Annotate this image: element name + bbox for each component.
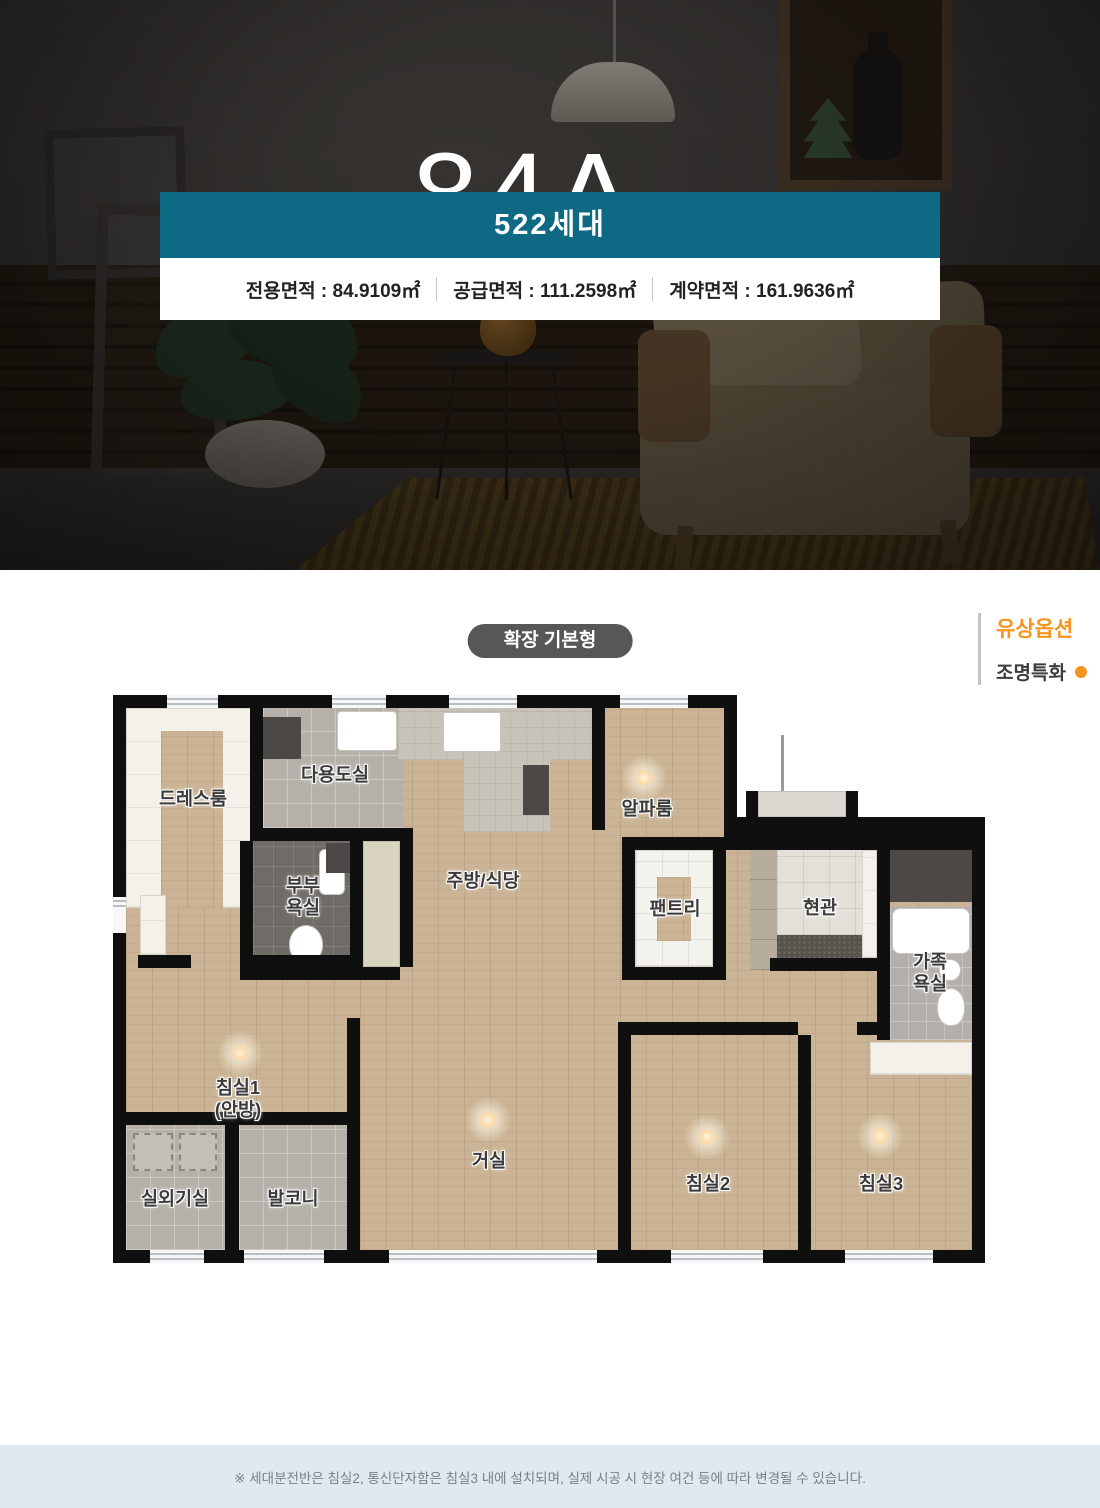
shoe-cabinet xyxy=(750,850,777,970)
lighting-dot-bed3 xyxy=(873,1129,888,1144)
wall-segment xyxy=(857,1022,890,1035)
room-label-family-bath: 가족 욕실 xyxy=(913,951,947,995)
window-marker xyxy=(167,695,218,708)
room-label-balcony: 발코니 xyxy=(267,1188,318,1210)
window-marker xyxy=(449,695,517,708)
ac-outdoor-unit xyxy=(133,1133,173,1171)
area-exclusive: 전용면적 : 84.9109㎡ xyxy=(246,276,421,303)
orange-dot-icon xyxy=(1075,666,1087,678)
window-marker xyxy=(113,897,126,933)
area-contract: 계약면적 : 161.9636㎡ xyxy=(669,276,854,303)
wall-segment xyxy=(138,955,191,968)
utility-cabinet xyxy=(263,717,301,759)
area-supply: 공급면적 : 111.2598㎡ xyxy=(453,276,636,303)
paid-option-title: 유상옵션 xyxy=(996,613,1087,643)
ac-outdoor-unit xyxy=(179,1133,217,1171)
window-marker xyxy=(332,695,386,708)
family-bath-storage xyxy=(890,850,972,902)
divider xyxy=(436,277,437,301)
wall-segment xyxy=(240,841,253,967)
bed3-shelf xyxy=(870,1042,972,1075)
entry-door-line xyxy=(781,735,784,791)
room-entry xyxy=(777,850,862,935)
stove xyxy=(523,765,549,815)
room-label-alpha: 알파룸 xyxy=(621,798,672,820)
footer-note-bar: ※ 세대분전반은 침실2, 통신단자함은 침실3 내에 설치되며, 실제 시공 … xyxy=(0,1445,1100,1508)
wall-segment xyxy=(350,841,363,967)
divider xyxy=(652,277,653,301)
wall-segment xyxy=(250,695,263,841)
kitchen-sink xyxy=(443,712,501,752)
lighting-dot-bed2 xyxy=(700,1130,715,1145)
lighting-dot-living xyxy=(481,1113,496,1128)
window-marker xyxy=(150,1250,204,1263)
wall-segment xyxy=(798,1035,811,1250)
expansion-type-badge: 확장 기본형 xyxy=(468,624,633,658)
lighting-dot-alpha xyxy=(637,771,652,786)
wall-segment xyxy=(225,1125,239,1250)
corridor-closet xyxy=(140,895,166,955)
area-info-box: 전용면적 : 84.9109㎡ 공급면적 : 111.2598㎡ 계약면적 : … xyxy=(160,258,940,320)
page: 84A㎡ 522세대 전용면적 : 84.9109㎡ 공급면적 : 111.25… xyxy=(0,0,1100,1508)
wall-segment xyxy=(347,1018,360,1250)
household-badge: 522세대 xyxy=(160,192,940,258)
room-label-utility: 다용도실 xyxy=(301,764,369,786)
hall-cabinet xyxy=(363,841,400,967)
entry-closet xyxy=(862,850,877,958)
floor-plan: 드레스룸 다용도실 부부 욕실 주방/식당 알파룸 팬트리 현관 가족 욕실 침… xyxy=(113,695,985,1263)
room-label-living: 거실 xyxy=(472,1150,506,1172)
wall-segment xyxy=(240,967,400,980)
entry-door-jamb xyxy=(846,791,858,817)
wall-segment xyxy=(263,828,403,841)
room-label-bed1: 침실1 (안방) xyxy=(215,1077,261,1121)
utility-sink xyxy=(337,711,397,751)
paid-option-item-label: 조명특화 xyxy=(996,658,1066,685)
footer-note: ※ 세대분전반은 침실2, 통신단자함은 침실3 내에 설치되며, 실제 시공 … xyxy=(234,1467,866,1487)
room-label-kitchen: 주방/식당 xyxy=(446,870,519,892)
lighting-dot-bed1 xyxy=(233,1046,248,1061)
wall-segment xyxy=(592,695,605,830)
window-marker xyxy=(845,1250,933,1263)
paid-option-item: 조명특화 xyxy=(996,658,1087,685)
wall-segment xyxy=(622,967,726,980)
wall-segment xyxy=(618,1022,798,1035)
room-label-bed3: 침실3 xyxy=(859,1173,903,1195)
room-label-pantry: 팬트리 xyxy=(649,898,700,920)
wall-segment xyxy=(770,958,877,971)
room-label-entry: 현관 xyxy=(803,897,837,919)
bath-cabinet xyxy=(326,843,350,873)
room-label-dressroom: 드레스룸 xyxy=(159,788,227,810)
wall-segment xyxy=(400,828,413,967)
wall-segment xyxy=(622,837,635,980)
hero-photo: 84A㎡ 522세대 전용면적 : 84.9109㎡ 공급면적 : 111.25… xyxy=(0,0,1100,570)
paid-option-legend: 유상옵션 조명특화 xyxy=(978,613,1087,685)
wall-segment xyxy=(877,850,890,1040)
wall-segment xyxy=(713,837,726,980)
wall-segment xyxy=(724,695,737,850)
window-marker xyxy=(620,695,688,708)
window-marker xyxy=(671,1250,763,1263)
room-label-outdoor: 실외기실 xyxy=(141,1188,209,1210)
wall-segment xyxy=(243,955,350,968)
entry-door-sill xyxy=(758,791,846,817)
dressroom-walkway xyxy=(161,731,223,908)
window-marker xyxy=(389,1250,597,1263)
window-marker xyxy=(244,1250,324,1263)
bathtub xyxy=(892,908,970,954)
room-label-bed2: 침실2 xyxy=(686,1173,730,1195)
entry-door-jamb xyxy=(746,791,758,817)
room-label-master-bath: 부부 욕실 xyxy=(286,875,320,919)
wall-segment xyxy=(618,1035,631,1250)
entry-mat xyxy=(777,935,862,958)
